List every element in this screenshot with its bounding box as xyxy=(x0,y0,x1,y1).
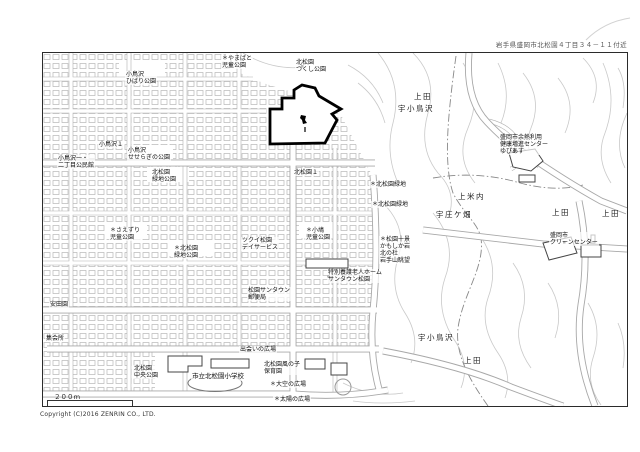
map-label-ryokuchi-1: ＊北松園緑地 xyxy=(369,181,407,188)
map-label-jukkei-viewpoint: ＊松園十景 かもしか岩 北の杜 岩手山眺望 xyxy=(379,236,411,264)
map-label-santown-postoffice: 松園サンタウン 郵便局 xyxy=(247,287,291,301)
map-label-yasudaen: 安田園 xyxy=(49,301,69,308)
map-label-ozora-plaza: ＊大空の広場 xyxy=(269,381,307,388)
map-label-yamabato-park: ＊やまばと 児童公園 xyxy=(221,55,253,69)
scale-bar xyxy=(47,400,133,406)
map-label-ueda-ne: 上田 xyxy=(413,93,433,102)
map-label-kotorizawa-1: 小鳥沢１ xyxy=(98,141,124,148)
map-label-ryokuchi-park-b: ＊北松園 緑地公園 xyxy=(173,245,199,259)
map-label-santown-carehome: 特別養護老人ホーム サンタウン松園 xyxy=(327,269,383,283)
map-label-taiyo-plaza: ＊太陽の広場 xyxy=(273,396,311,403)
map-label-kamiyonai: 上米内 xyxy=(457,193,486,202)
map-label-shogahata: 宇庄ケ畑 xyxy=(435,211,473,220)
map-label-ryokuchi-2: ＊北松園緑地 xyxy=(371,201,409,208)
scanned-map-page: { "header": { "address": "岩手県盛岡市北松園４丁目３４… xyxy=(0,0,640,452)
map-label-shukaijo: 集会所 xyxy=(45,335,65,342)
map-label-seseragi-park: 小鳥沢 せせらぎの公園 xyxy=(127,147,171,161)
map-frame: ＊やまばと 児童公園 小鳥沢 ひばり公園 北松園 つくし公園 上田 宇小鳥沢 小… xyxy=(42,52,628,407)
map-label-tsukushi-park: 北松園 つくし公園 xyxy=(295,59,327,73)
map-label-kotorizawa-sw: 宇小鳥沢 xyxy=(417,334,455,343)
map-label-kotorizawa-ne: 宇小鳥沢 xyxy=(397,105,435,114)
map-label-cleancenter: 盛岡市 クリーンセンター xyxy=(549,232,599,246)
copyright-text: Copyright (C)2016 ZENRIN CO., LTD. xyxy=(40,411,156,418)
map-label-ueda-south: 上田 xyxy=(463,357,483,366)
map-label-ryokuchi-park-a: 北松園 緑地公園 xyxy=(151,169,177,183)
map-label-deai-plaza: 出会いの広場 xyxy=(239,346,277,353)
map-label-ueda-mid: 上田 xyxy=(551,209,571,218)
map-label-hibari-park: 小鳥沢 ひばり公園 xyxy=(125,71,157,85)
map-label-elementary-school: 市立北松園小学校 xyxy=(191,373,245,381)
map-label-yupias-center: 盛岡市余熱利用 健康増進センター ゆぴあす xyxy=(499,134,549,155)
map-label-kitamatsuzono-1: 北松園１ xyxy=(293,169,319,176)
map-label-ueda-right: 上田 xyxy=(601,210,621,219)
map-label-saezuri-park: ＊さえずり 児童公園 xyxy=(109,227,141,241)
map-label-tsukui-dayservice: ツクイ松園 デイサービス xyxy=(241,237,279,251)
map-label-chuo-park: 北松園 中央公園 xyxy=(133,365,159,379)
map-label-kobato-park: ＊小鳩 児童公園 xyxy=(305,227,331,241)
scan-artifact xyxy=(584,14,634,44)
map-label-kominkan: 小鳥沢一・ 二丁目公民館 xyxy=(57,155,95,169)
map-label-kazenoko-nursery: 北松園風の子 保育園 xyxy=(263,361,301,375)
